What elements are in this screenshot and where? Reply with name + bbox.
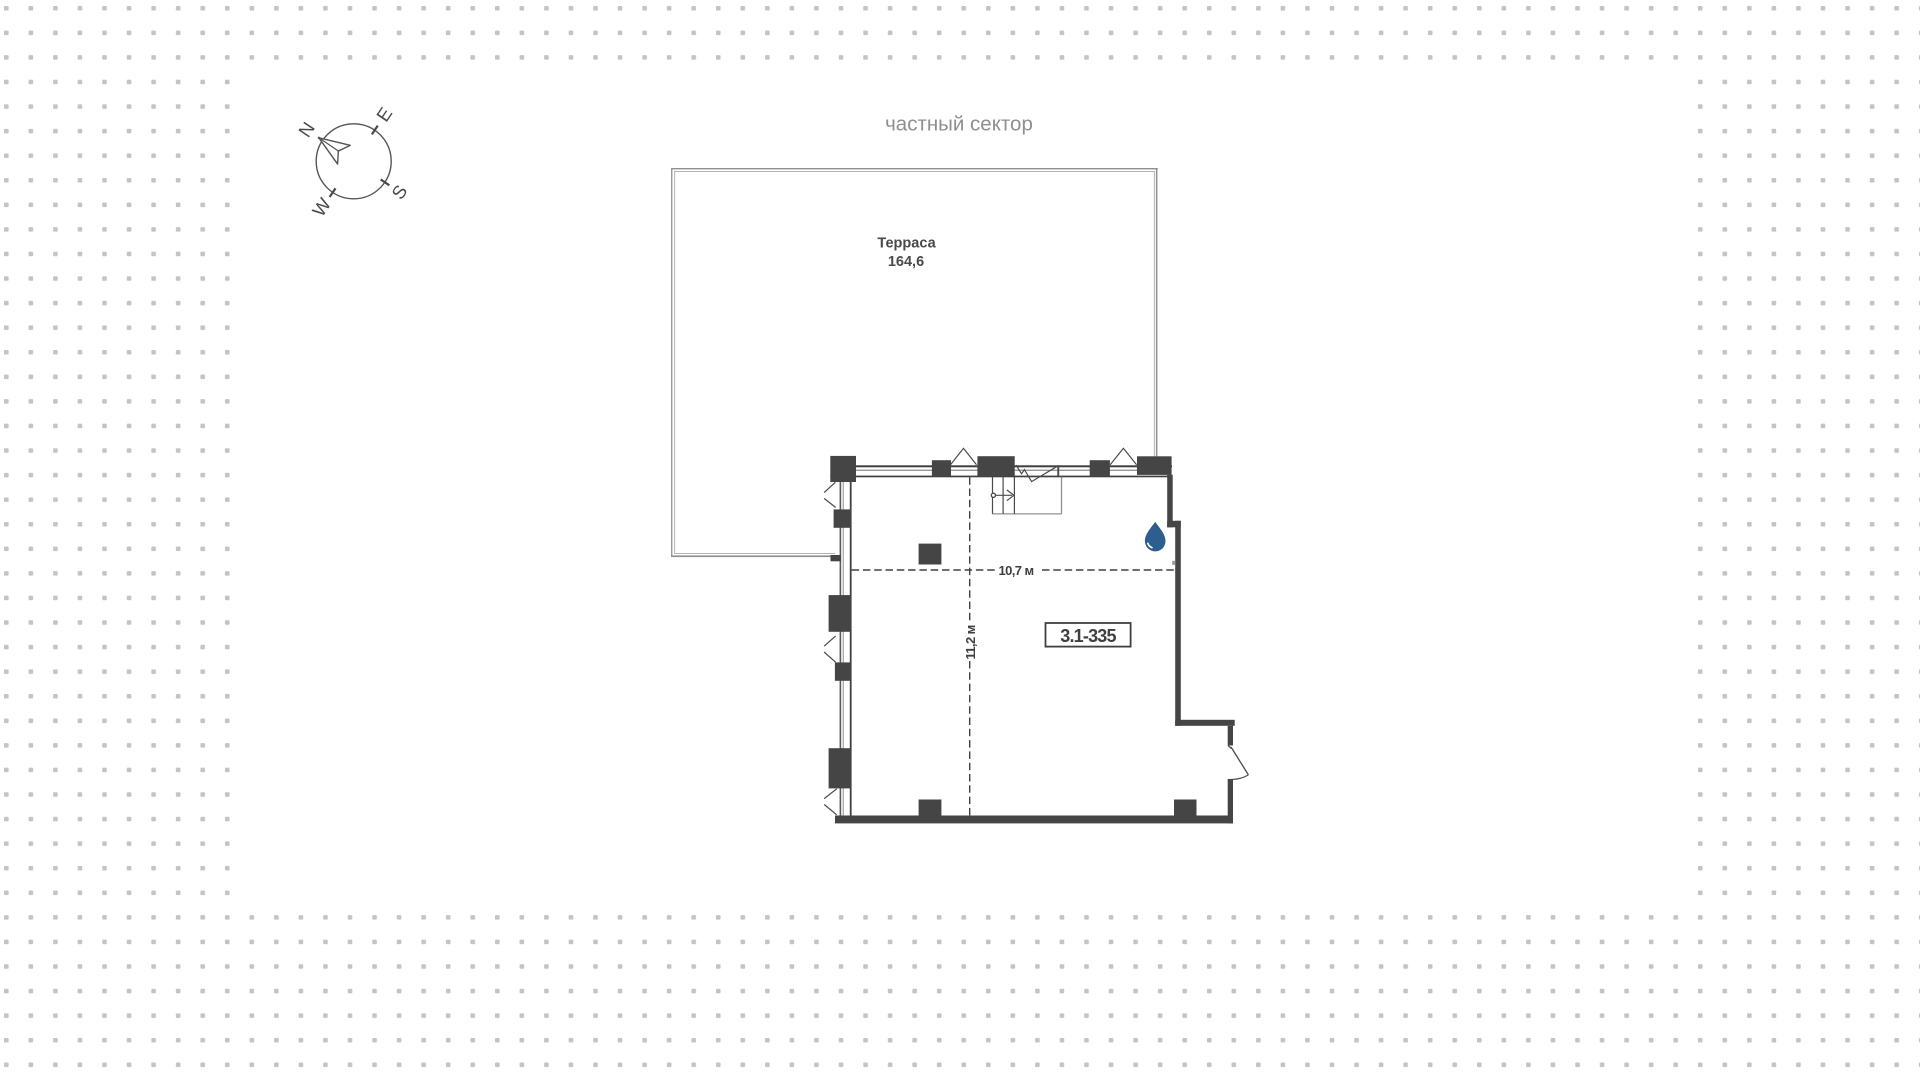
- svg-text:3.1-335: 3.1-335: [1060, 626, 1116, 646]
- svg-text:11,2 м: 11,2 м: [963, 625, 978, 659]
- svg-text:10,7 м: 10,7 м: [999, 563, 1034, 578]
- svg-text:частный сектор: частный сектор: [885, 113, 1033, 136]
- svg-text:164,6: 164,6: [888, 254, 924, 270]
- svg-text:Терраса: Терраса: [877, 236, 936, 252]
